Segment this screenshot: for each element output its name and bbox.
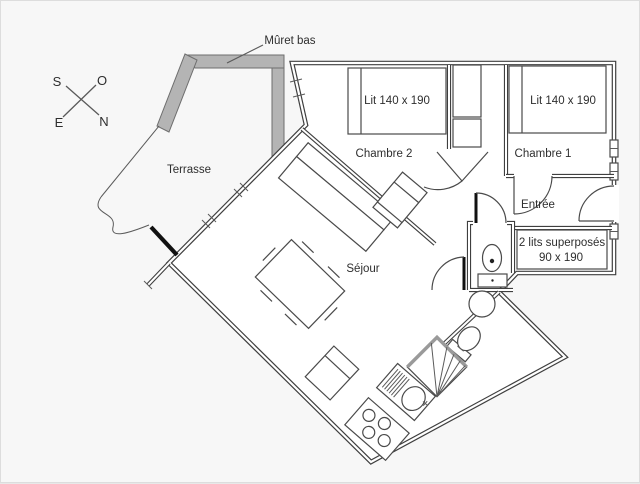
bed1-label: Lit 140 x 190 xyxy=(530,95,596,107)
muret-label: Mûret bas xyxy=(264,35,315,47)
compass: S O E N xyxy=(53,73,109,130)
terrace-edge xyxy=(98,126,159,234)
sejour-label: Séjour xyxy=(346,263,379,275)
window-icon xyxy=(610,140,618,157)
terrasse-label: Terrasse xyxy=(167,164,211,176)
entree-label: Entrée xyxy=(521,199,555,211)
muret-low-wall xyxy=(157,54,284,159)
compass-south-label: S xyxy=(53,74,62,89)
compass-north-label: N xyxy=(99,114,108,129)
floor-plan-svg: S O E N Mûret bas Terrasse Chambre 2 Cha… xyxy=(1,1,640,484)
washbasin-icon xyxy=(469,291,495,317)
bunk-label-line1: 2 lits superposés xyxy=(519,237,606,249)
chambre2-label: Chambre 2 xyxy=(356,148,413,160)
bed2-label: Lit 140 x 190 xyxy=(364,95,430,107)
compass-west-label: O xyxy=(97,73,107,88)
chambre1-label: Chambre 1 xyxy=(515,148,572,160)
bunk-label-line2: 90 x 190 xyxy=(539,252,583,264)
terrace-gate xyxy=(151,227,177,255)
right-wall-openings xyxy=(610,140,619,239)
compass-east-label: E xyxy=(55,115,64,130)
floor-plan-page: S O E N Mûret bas Terrasse Chambre 2 Cha… xyxy=(0,0,640,483)
